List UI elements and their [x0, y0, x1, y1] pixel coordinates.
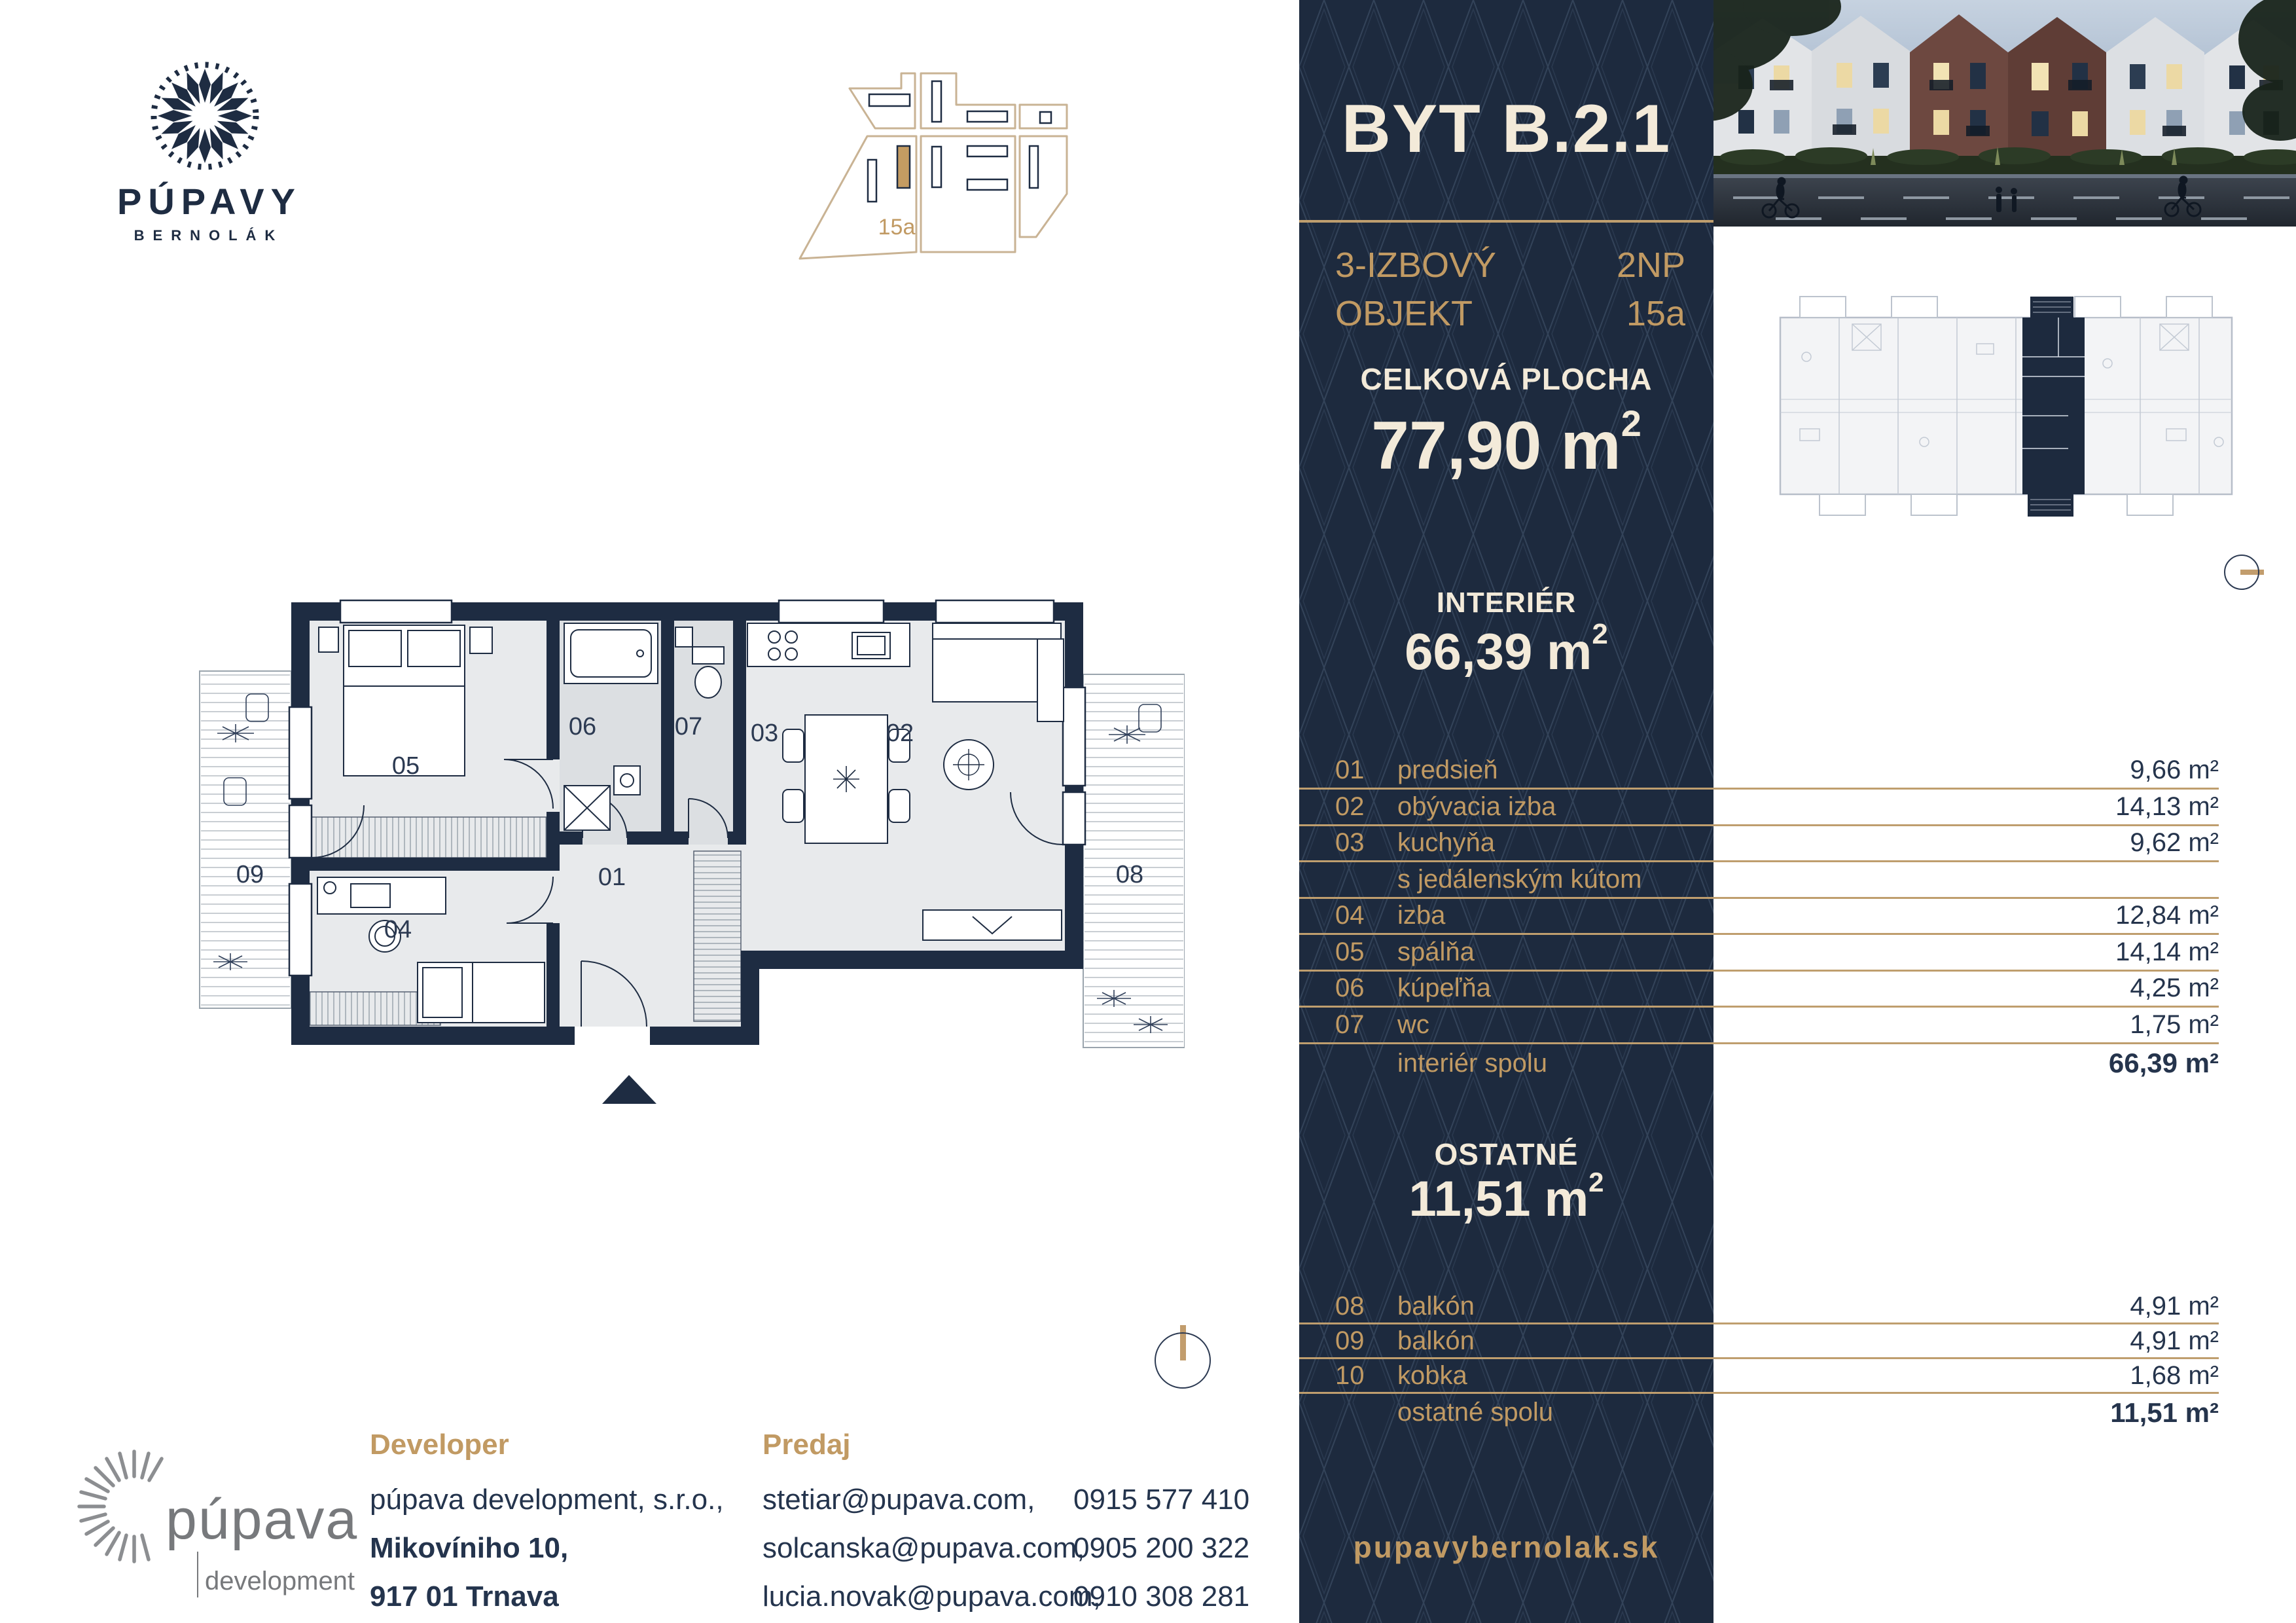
table-row: 07 wc 1,75 m²: [1299, 1008, 2219, 1044]
row-number: 10: [1299, 1361, 1397, 1391]
apartment-fact-sheet: PÚPAVY BERNOLÁK 15a: [0, 0, 2296, 1623]
total-area-number: 77,90 m: [1371, 407, 1621, 485]
row-value: 9,66 m²: [1944, 756, 2219, 785]
table-row: 10 kobka 1,68 m²: [1299, 1359, 2219, 1394]
brand-logo: PÚPAVY BERNOLÁK: [65, 36, 347, 252]
floor-plan-drawing: 01 02 03 04 05 06 07 08 09: [190, 570, 1185, 1113]
row-label: s jedálenským kútom: [1397, 865, 1944, 894]
table-row: 02 obývacia izba 14,13 m²: [1299, 790, 2219, 826]
row-label: spálňa: [1397, 938, 1944, 967]
developer-block: Developer púpava development, s.r.o., Mi…: [370, 1429, 724, 1621]
apartment-type-block: 3-IZBOVÝ 2NP OBJEKT 15a: [1335, 241, 1685, 338]
table-row-total: interiér spolu 66,39 m²: [1299, 1044, 2219, 1083]
table-row: s jedálenským kútom: [1299, 862, 2219, 899]
highlighted-apartment-unit: [2022, 297, 2085, 517]
row-number: 03: [1299, 828, 1397, 858]
sales-phone: 0915 577 410: [1073, 1476, 1249, 1524]
room-label-04: 04: [384, 916, 412, 943]
row-label: balkón: [1397, 1326, 1944, 1356]
row-number: 08: [1299, 1292, 1397, 1321]
apartment-title: BYT B.2.1: [1299, 90, 1713, 168]
row-label: kuchyňa: [1397, 828, 1944, 858]
row-value: 11,51 m²: [1944, 1397, 2219, 1429]
room-label-02: 02: [886, 720, 914, 747]
object-number: 15a: [1626, 289, 1685, 338]
row-number: 04: [1299, 901, 1397, 930]
row-label: izba: [1397, 901, 1944, 930]
interior-label: INTERIÉR: [1299, 587, 1713, 619]
row-value: 4,91 m²: [1944, 1292, 2219, 1321]
interior-area-sup: 2: [1592, 618, 1607, 651]
row-label: interiér spolu: [1397, 1049, 1944, 1078]
highlighted-building-15a: [897, 146, 910, 188]
developer-heading: Developer: [370, 1429, 724, 1461]
building-overview-plan: [1761, 278, 2271, 534]
table-row: 03 kuchyňa 9,62 m²: [1299, 826, 2219, 862]
row-value: 14,13 m²: [1944, 792, 2219, 822]
row-label: wc: [1397, 1010, 1944, 1040]
sales-heading: Predaj: [762, 1429, 1249, 1461]
brand-name: PÚPAVY: [117, 181, 302, 222]
row-number: 06: [1299, 974, 1397, 1003]
sales-email[interactable]: stetiar@pupava.com,: [762, 1476, 1073, 1524]
row-value: 4,25 m²: [1944, 974, 2219, 1003]
developer-city: 917 01 Trnava: [370, 1573, 724, 1621]
row-value: 66,39 m²: [1944, 1048, 2219, 1079]
table-row: 08 balkón 4,91 m²: [1299, 1290, 2219, 1324]
table-row: 09 balkón 4,91 m²: [1299, 1324, 2219, 1359]
dev-logo-sub: development: [205, 1567, 355, 1596]
table-row-total: ostatné spolu 11,51 m²: [1299, 1394, 2219, 1431]
row-value: 14,14 m²: [1944, 938, 2219, 967]
interior-area-value: 66,39 m 2: [1299, 622, 1713, 682]
sales-block: Predaj stetiar@pupava.com, 0915 577 410 …: [762, 1429, 1249, 1621]
sales-phone: 0905 200 322: [1073, 1524, 1249, 1573]
room-label-09: 09: [236, 861, 264, 888]
row-label: obývacia izba: [1397, 792, 1944, 822]
table-row: 04 izba 12,84 m²: [1299, 898, 2219, 935]
total-area-sup: 2: [1621, 402, 1641, 445]
row-number: 07: [1299, 1010, 1397, 1040]
type-object: OBJEKT: [1335, 289, 1473, 338]
room-label-08: 08: [1116, 861, 1143, 888]
row-number: 01: [1299, 756, 1397, 785]
row-value: 12,84 m²: [1944, 901, 2219, 930]
site-plan-label: 15a: [878, 215, 916, 240]
other-label: OSTATNÉ: [1299, 1137, 1713, 1172]
room-label-03: 03: [751, 720, 778, 747]
row-value: 9,62 m²: [1944, 828, 2219, 858]
row-value: 1,75 m²: [1944, 1010, 2219, 1040]
compass-icon: [1147, 1317, 1220, 1402]
site-plan: 15a: [766, 45, 1132, 262]
building-render-photo: [1713, 0, 2296, 227]
room-label-05: 05: [392, 752, 420, 780]
sales-email[interactable]: solcanska@pupava.com,: [762, 1524, 1073, 1573]
dandelion-icon: [154, 65, 256, 167]
other-area-number: 11,51 m: [1408, 1171, 1588, 1228]
row-value: 1,68 m²: [1944, 1361, 2219, 1391]
row-number: 02: [1299, 792, 1397, 822]
developer-logo: púpava development: [69, 1431, 383, 1620]
website-link[interactable]: pupavybernolak.sk: [1299, 1529, 1713, 1565]
gold-divider: [1299, 220, 1713, 223]
other-area-sup: 2: [1588, 1167, 1604, 1198]
row-number: 05: [1299, 938, 1397, 967]
total-area-value: 77,90 m 2: [1299, 407, 1713, 485]
interior-area-number: 66,39 m: [1405, 622, 1592, 682]
row-number: 09: [1299, 1326, 1397, 1356]
type-rooms: 3-IZBOVÝ: [1335, 241, 1496, 289]
row-label: kobka: [1397, 1361, 1944, 1391]
row-value: 4,91 m²: [1944, 1326, 2219, 1356]
table-row: 06 kúpeľňa 4,25 m²: [1299, 971, 2219, 1008]
north-arrow-icon: [602, 1075, 656, 1104]
row-label: ostatné spolu: [1397, 1398, 1944, 1427]
table-row: 05 spálňa 14,14 m²: [1299, 935, 2219, 972]
table-row: 01 predsieň 9,66 m²: [1299, 753, 2219, 790]
row-label: balkón: [1397, 1292, 1944, 1321]
room-label-01: 01: [598, 864, 626, 891]
ray-burst-icon: [79, 1451, 162, 1561]
room-label-06: 06: [569, 713, 596, 740]
sales-email[interactable]: lucia.novak@pupava.com,: [762, 1573, 1073, 1621]
row-label: kúpeľňa: [1397, 974, 1944, 1003]
brand-subtitle: BERNOLÁK: [134, 227, 284, 244]
other-area-value: 11,51 m 2: [1299, 1171, 1713, 1228]
total-area-label: CELKOVÁ PLOCHA: [1299, 361, 1713, 397]
floor-number: 2NP: [1617, 241, 1685, 289]
sales-phone: 0910 308 281: [1073, 1573, 1249, 1621]
room-label-07: 07: [675, 713, 702, 740]
developer-street: Mikovíniho 10,: [370, 1524, 724, 1573]
balcony-09: [200, 671, 291, 1008]
compass-icon: [2215, 543, 2270, 598]
developer-company: púpava development, s.r.o.,: [370, 1476, 724, 1524]
row-label: predsieň: [1397, 756, 1944, 785]
dev-logo-name: púpava: [166, 1488, 358, 1551]
